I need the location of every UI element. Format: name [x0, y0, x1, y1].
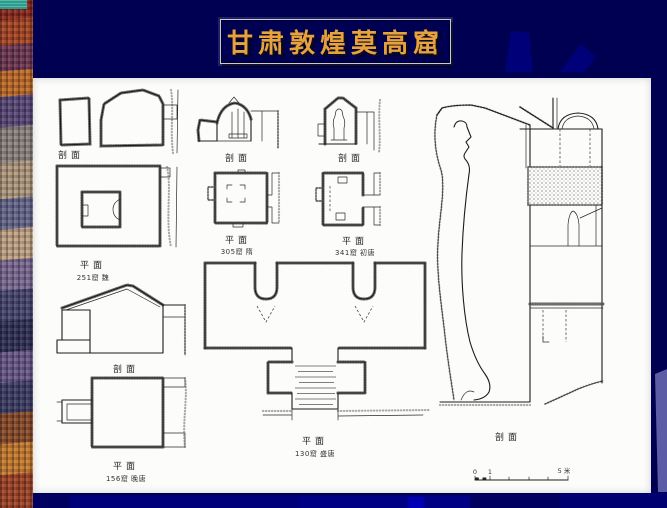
cave305-figure: 剖面 平面 305窟 隋	[198, 97, 279, 256]
bottom-band-segment	[70, 496, 310, 508]
cave341-section-label: 剖面	[338, 152, 364, 164]
cave341-figure: 剖面 平面 341窟 初唐	[316, 98, 380, 257]
cave251-caption: 251窟 魏	[77, 273, 110, 282]
slide-title: 甘肃敦煌莫高窟	[227, 23, 444, 60]
cave341-plan-label: 平面	[342, 236, 368, 247]
cave156-section-label: 剖面	[113, 363, 139, 375]
presentation-slide: 甘肃敦煌莫高窟 剖面	[0, 0, 667, 508]
cave130-plan-caption: 130窟 盛唐	[295, 449, 335, 458]
scale-five-meters: 5 米	[558, 466, 571, 475]
cave156-figure: 剖面 平面 156窟 晚唐	[57, 285, 186, 483]
decor-left-strip	[0, 0, 33, 508]
cave341-caption: 341窟 初唐	[335, 248, 375, 257]
right-edge-wedge	[655, 369, 667, 492]
cave305-plan-label: 平面	[225, 235, 251, 246]
cave251-plan-label: 平面	[80, 260, 106, 271]
scale-zero: 0	[473, 468, 477, 476]
cave305-caption: 305窟 隋	[221, 247, 254, 256]
cave130-plan-figure: 平面 130窟 盛唐	[205, 263, 430, 458]
cave251-section-label: 剖面	[58, 149, 84, 161]
gear-tooth-icon	[560, 44, 596, 72]
cave251-figure: 剖面 平面 251窟 魏	[57, 90, 178, 282]
bottom-band-segment	[300, 496, 470, 508]
slide-title-box: 甘肃敦煌莫高窟	[220, 19, 451, 64]
architectural-drawings: 剖面 平面 251窟 魏 剖面	[33, 78, 651, 493]
cave156-plan-label: 平面	[113, 461, 139, 472]
cave130-section-label: 剖面	[495, 431, 521, 443]
decor-teal-chip	[0, 0, 27, 9]
scale-bar: 0 1 5 米	[473, 466, 571, 480]
scale-one: 1	[488, 468, 492, 476]
cave305-section-label: 剖面	[225, 152, 251, 164]
cave156-caption: 156窟 晚唐	[106, 474, 146, 483]
gear-tooth-icon	[505, 31, 533, 72]
bottom-band-segment	[560, 493, 667, 508]
cave130-plan-label: 平面	[302, 436, 328, 447]
cave130-section-figure: 剖面 0 1 5 米	[435, 98, 603, 480]
bottom-band-chip	[408, 497, 424, 508]
drawings-panel: 剖面 平面 251窟 魏 剖面	[33, 78, 651, 493]
